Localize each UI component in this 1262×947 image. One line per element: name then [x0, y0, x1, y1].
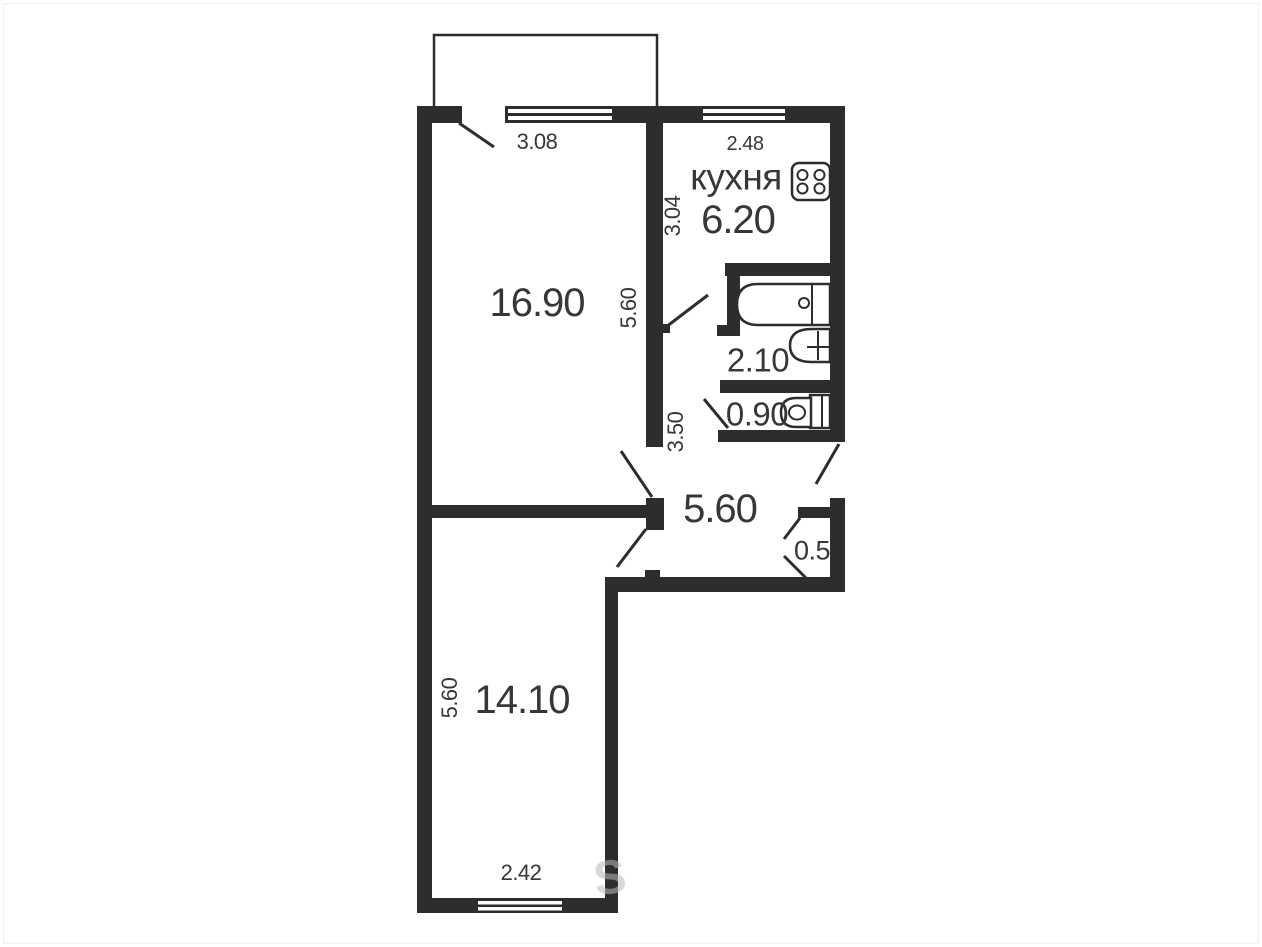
door-balcony-swing [459, 123, 494, 147]
sink-body [790, 329, 830, 362]
door-wc-swing [704, 399, 728, 428]
window-kitchen-frame [700, 106, 788, 123]
dim-bedroom-width: 2.42 [501, 862, 542, 884]
door-bathroom-swing [662, 295, 708, 330]
wall-hall-bottom [605, 577, 845, 592]
dim-kitchen-width: 2.48 [727, 134, 764, 154]
window-kitchen [700, 106, 788, 123]
wall-living-kitchen [646, 123, 663, 447]
wall-living-bedroom [417, 505, 648, 518]
wall-bottom-left-segment [417, 898, 475, 913]
window-living [505, 106, 615, 123]
wall-right-upper [830, 106, 845, 442]
wall-closet-stub [798, 507, 830, 518]
wall-bath-top [725, 263, 830, 276]
window-bedroom-frame [475, 898, 565, 913]
window-living-pane [508, 116, 612, 120]
hallway-area-label: 5.60 [683, 489, 757, 529]
window-bedroom-pane [478, 907, 562, 911]
wall-top-mid-segment [615, 106, 700, 123]
window-living-frame [505, 106, 615, 123]
jamb-bedroom-door [645, 570, 660, 577]
bedroom-area-label: 14.10 [474, 680, 569, 720]
dim-corridor-depth: 3.50 [665, 412, 687, 453]
closet-area-label: 0.5 [794, 538, 830, 565]
balcony-outline [434, 35, 657, 108]
door-entrance-swing [816, 444, 839, 484]
kitchen-area-label: 6.20 [701, 200, 775, 240]
window-living-pane [508, 109, 612, 113]
window-kitchen-pane [703, 109, 785, 113]
wc-area-label: 0.90 [726, 398, 788, 431]
window-bedroom-pane [478, 901, 562, 905]
sink-icon [790, 329, 830, 362]
toilet-icon [781, 395, 830, 428]
toilet-tank [810, 395, 830, 428]
floor-plan-canvas: 3.08 2.48 кухня 6.20 3.04 16.90 5.60 2.1… [0, 0, 1262, 947]
door-living-swing [621, 451, 652, 497]
wall-bath-wc-divider [720, 380, 830, 393]
dim-living-depth: 5.60 [618, 288, 640, 329]
stove-icon [792, 163, 830, 200]
living-area-label: 16.90 [489, 283, 584, 323]
dim-living-width: 3.08 [517, 131, 558, 153]
kitchen-name-label: кухня [690, 159, 782, 196]
floor-plan-drawing [0, 0, 1262, 947]
bathtub-body [737, 284, 830, 325]
door-bedroom-swing [617, 529, 646, 567]
dim-bedroom-depth: 5.60 [439, 678, 461, 719]
window-kitchen-pane [703, 116, 785, 120]
dim-kitchen-depth: 3.04 [662, 196, 684, 237]
bathtub-icon [737, 284, 830, 325]
jamb-bath-door-right [717, 325, 740, 336]
stove-body [792, 163, 830, 200]
bathroom-area-label: 2.10 [727, 344, 789, 377]
wall-door-column [646, 498, 664, 530]
window-bedroom [475, 898, 565, 913]
